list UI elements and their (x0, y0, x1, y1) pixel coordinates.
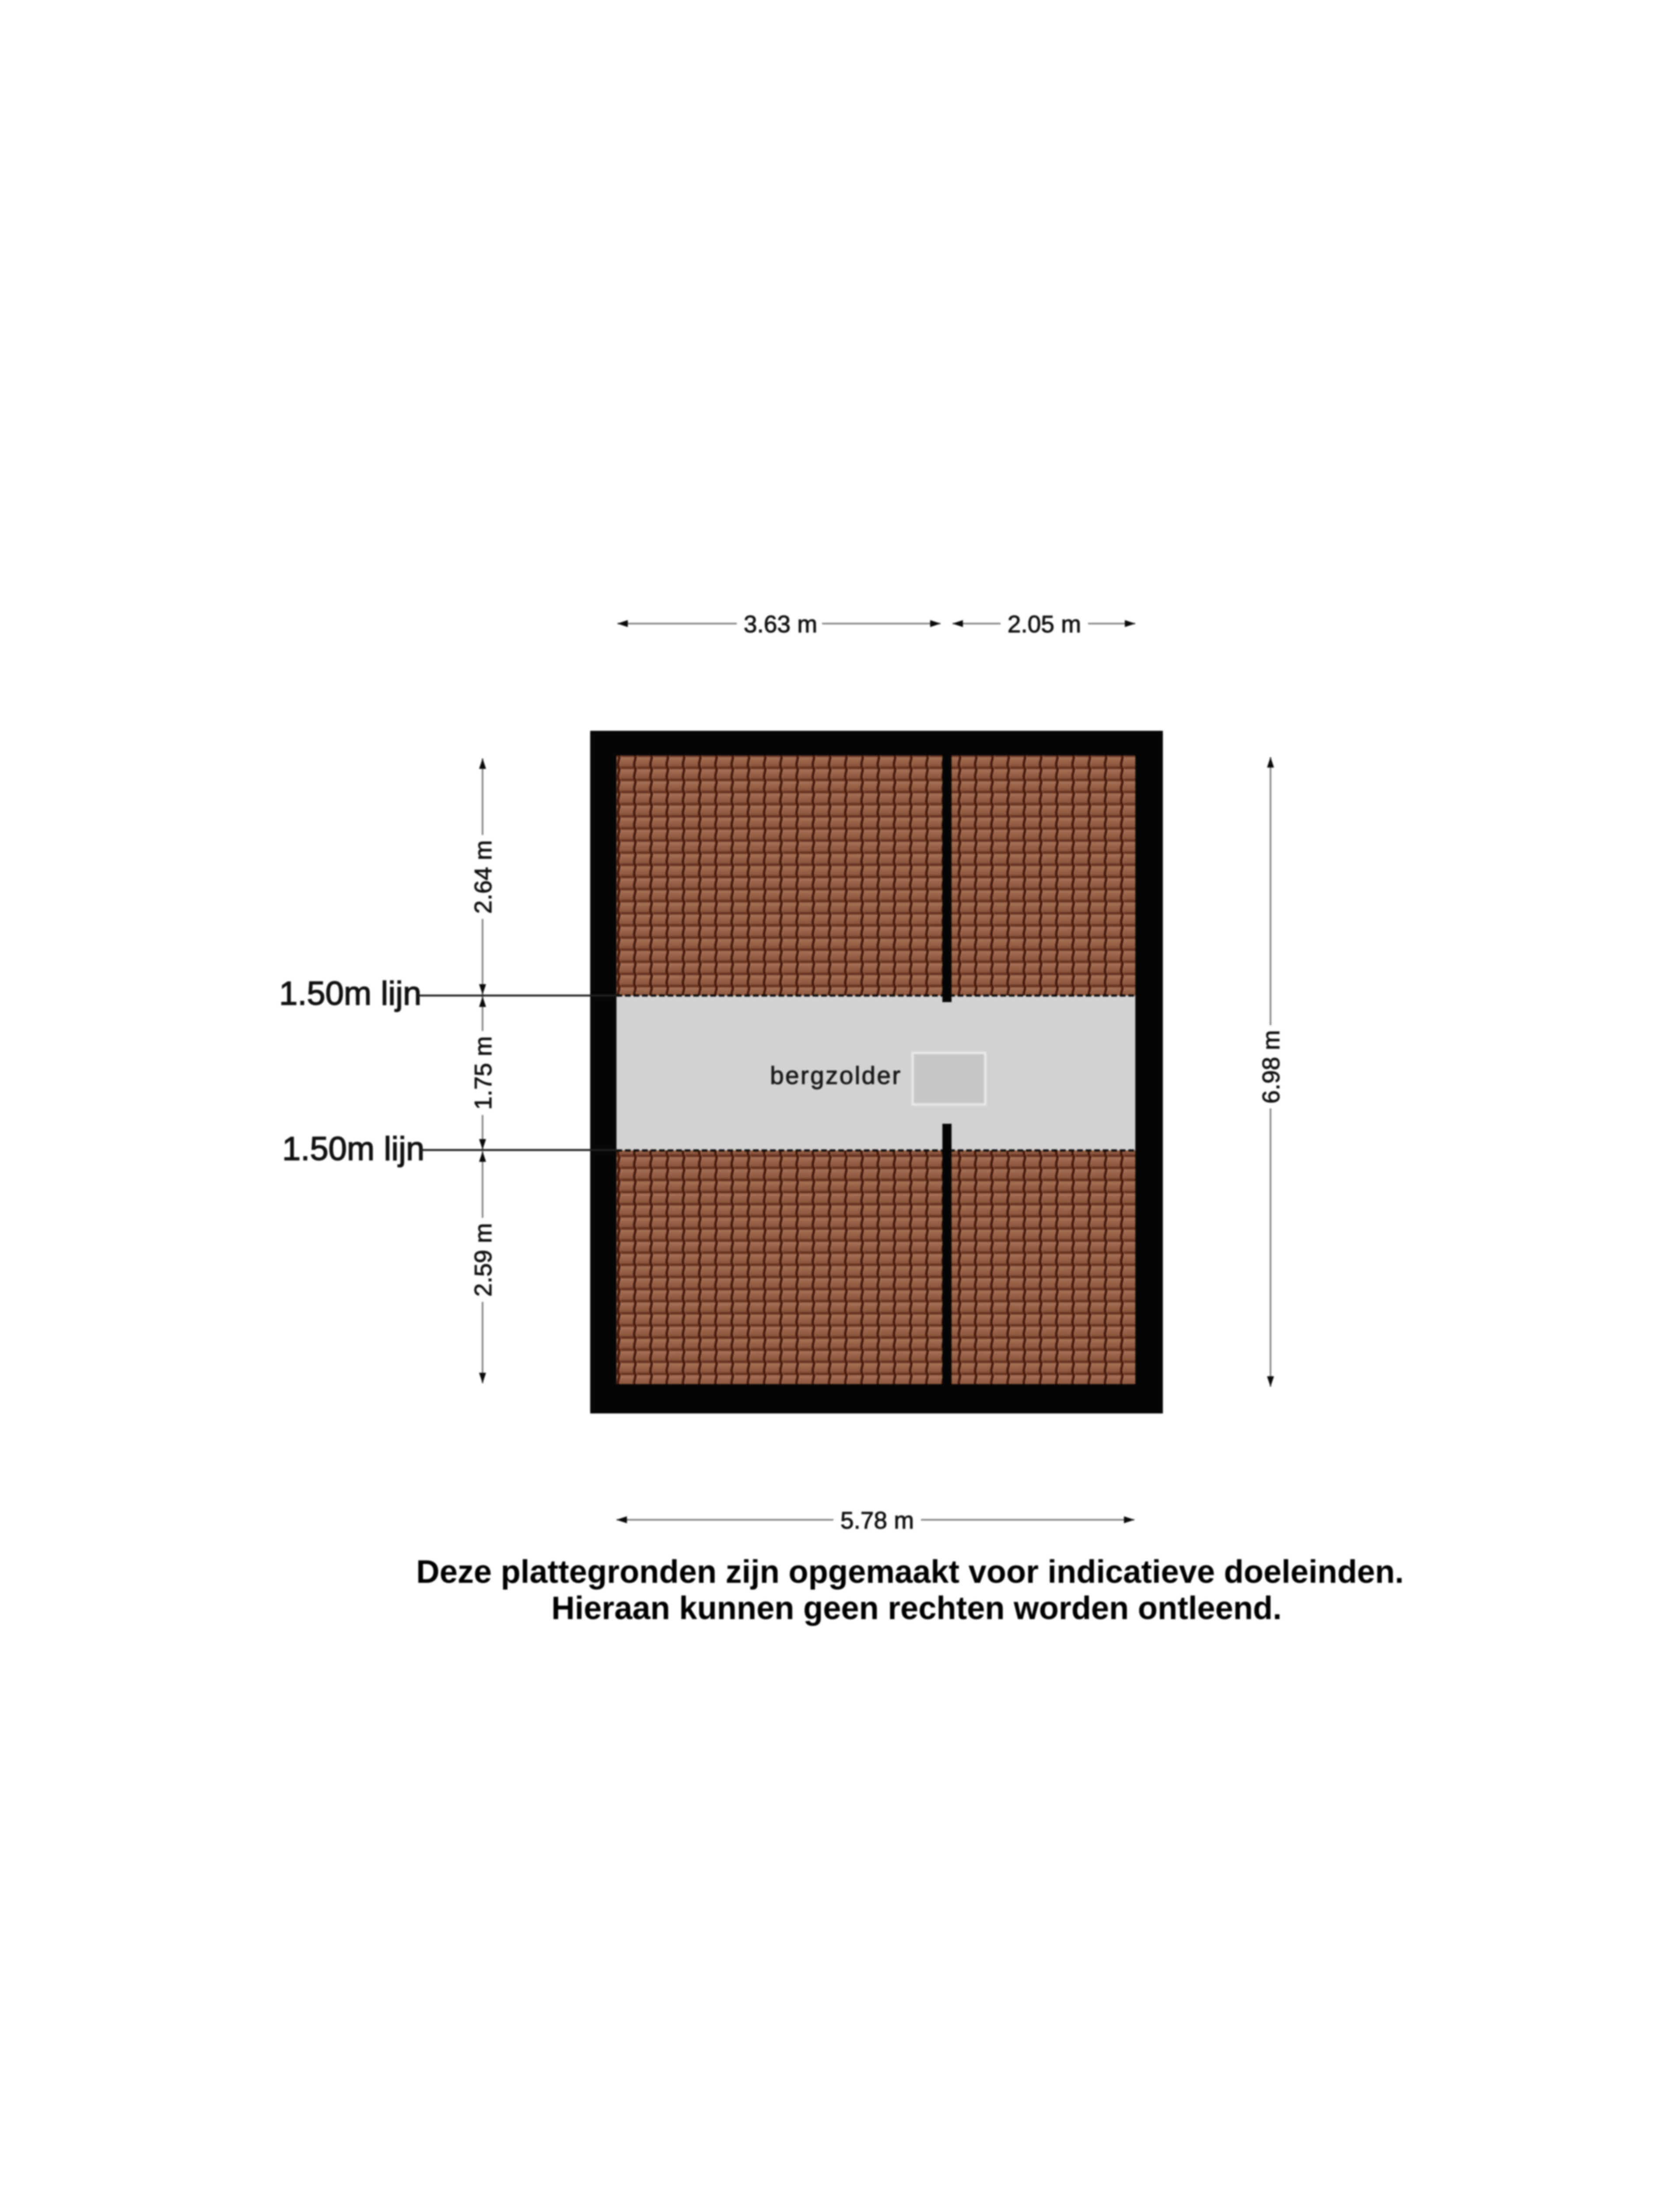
svg-text:Deze plattegronden zijn opgema: Deze plattegronden zijn opgemaakt voor i… (416, 1553, 1403, 1590)
svg-text:1.75 m: 1.75 m (469, 1036, 497, 1110)
svg-text:5.78 m: 5.78 m (840, 1507, 914, 1534)
svg-text:bergzolder: bergzolder (770, 1062, 902, 1090)
svg-text:1.50m lijn: 1.50m lijn (282, 1130, 424, 1168)
svg-text:1.50m lijn: 1.50m lijn (279, 975, 421, 1012)
svg-text:2.05 m: 2.05 m (1008, 610, 1081, 638)
svg-text:Hieraan kunnen geen rechten wo: Hieraan kunnen geen rechten worden ontle… (551, 1590, 1281, 1626)
svg-text:6.98 m: 6.98 m (1257, 1030, 1284, 1104)
svg-text:2.59 m: 2.59 m (469, 1223, 497, 1297)
svg-text:3.63 m: 3.63 m (744, 610, 817, 638)
svg-text:2.64 m: 2.64 m (469, 840, 497, 914)
